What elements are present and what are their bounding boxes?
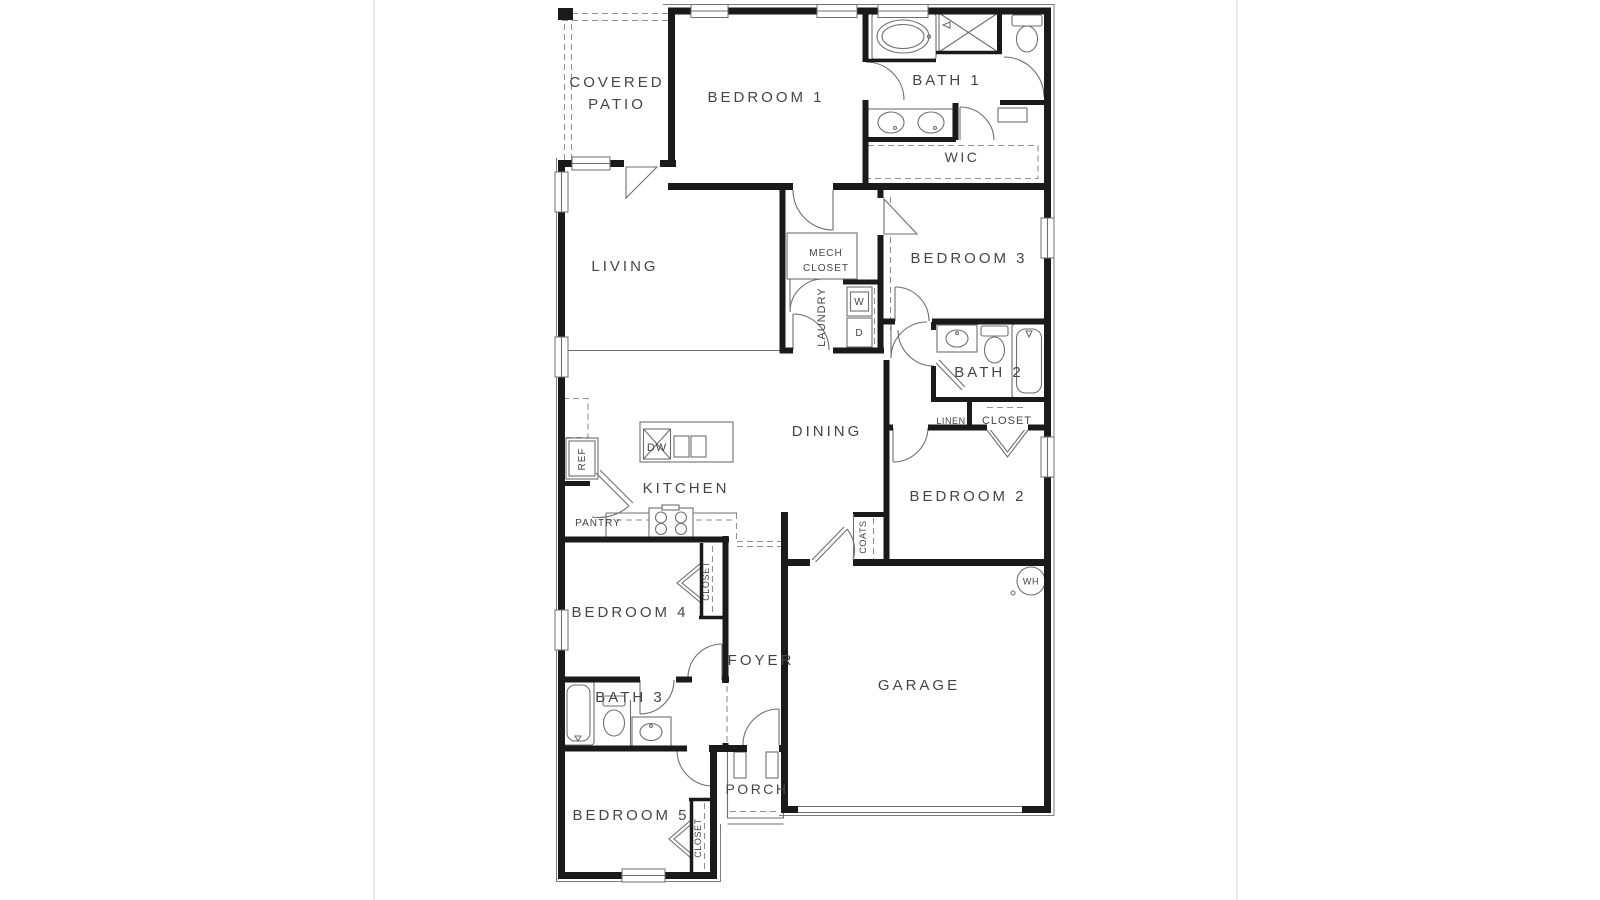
walls xyxy=(558,8,1051,879)
window xyxy=(1041,437,1054,477)
label-bedroom3: BEDROOM 3 xyxy=(910,250,1027,267)
window xyxy=(691,5,728,18)
label-pantry: PANTRY xyxy=(575,518,621,529)
double-vanity-icon xyxy=(868,109,953,138)
bedroom5-closet-doors xyxy=(669,820,691,858)
label-mech-2: CLOSET xyxy=(803,263,849,274)
label-hall-closet: CLOSET xyxy=(982,415,1032,427)
label-dishwasher: DW xyxy=(647,442,667,454)
floor-plan: COVERED PATIO BEDROOM 1 BATH 1 WIC LIVIN… xyxy=(0,0,1600,900)
page: COVERED PATIO BEDROOM 1 BATH 1 WIC LIVIN… xyxy=(0,0,1600,900)
label-living: LIVING xyxy=(591,258,658,275)
label-washer: W xyxy=(854,297,864,308)
stove-icon xyxy=(649,505,693,537)
patio-door xyxy=(626,167,657,198)
window xyxy=(1041,218,1054,258)
wic-shelf xyxy=(998,108,1027,122)
wic-door xyxy=(960,107,994,140)
label-dining: DINING xyxy=(792,423,863,440)
shower-icon xyxy=(939,13,998,52)
garage-entry-door xyxy=(812,527,855,562)
label-water-heater: WH xyxy=(1023,577,1039,587)
toilet-icon-bath1 xyxy=(1012,15,1042,52)
label-bath3: BATH 3 xyxy=(595,689,664,706)
garage-door xyxy=(798,807,1022,813)
tub-icon-bath2 xyxy=(1012,324,1046,398)
window xyxy=(622,869,665,882)
bedroom3-door xyxy=(884,199,917,234)
hall-door xyxy=(891,322,927,358)
toilet-room-door xyxy=(1004,57,1044,97)
label-kitchen: KITCHEN xyxy=(643,480,730,497)
label-linen: LINEN xyxy=(936,416,966,426)
tub-icon-bath3 xyxy=(563,681,594,745)
bath1-door xyxy=(866,62,904,100)
vanity-icon-bath2 xyxy=(937,325,977,352)
label-bedroom1: BEDROOM 1 xyxy=(707,89,824,106)
label-bedroom4: BEDROOM 4 xyxy=(571,604,688,621)
label-bedroom2: BEDROOM 2 xyxy=(909,488,1026,505)
bedroom2-closet-doors xyxy=(987,430,1028,457)
window xyxy=(555,172,568,212)
label-closet-bed5: CLOSET xyxy=(693,818,703,858)
label-ref: REF xyxy=(577,448,588,471)
toilet-icon-bath2 xyxy=(981,326,1008,363)
window xyxy=(555,610,568,650)
bedroom1-door xyxy=(793,190,833,230)
window xyxy=(555,337,568,377)
label-mech-1: MECH xyxy=(809,248,842,259)
label-bedroom5: BEDROOM 5 xyxy=(572,807,689,824)
label-bath2: BATH 2 xyxy=(954,364,1023,381)
window xyxy=(817,5,857,18)
label-porch: PORCH xyxy=(725,781,788,797)
label-wic: WIC xyxy=(945,149,980,165)
label-covered-patio-1: COVERED xyxy=(569,74,664,91)
label-garage: GARAGE xyxy=(878,677,960,694)
window xyxy=(878,5,928,18)
bedroom3-hall-door xyxy=(895,287,929,321)
bedroom4-door xyxy=(688,644,722,680)
label-covered-patio-2: PATIO xyxy=(588,96,646,113)
label-coats: COATS xyxy=(858,520,868,553)
vanity-icon-bath3 xyxy=(632,717,671,746)
label-foyer: FOYER xyxy=(728,652,795,669)
bedroom2-door xyxy=(893,428,928,462)
bedroom5-door xyxy=(677,750,713,786)
patio-corner-post xyxy=(558,8,573,20)
window xyxy=(572,157,610,170)
label-bath1: BATH 1 xyxy=(912,72,981,89)
label-dryer: D xyxy=(855,328,863,339)
page-dividers xyxy=(374,0,1237,900)
label-laundry: LAUNDRY xyxy=(816,287,828,346)
front-door xyxy=(743,709,779,745)
garden-tub-icon xyxy=(872,14,936,59)
bedroom4-closet-doors xyxy=(677,563,701,603)
label-closet-bed4: CLOSET xyxy=(701,561,711,601)
